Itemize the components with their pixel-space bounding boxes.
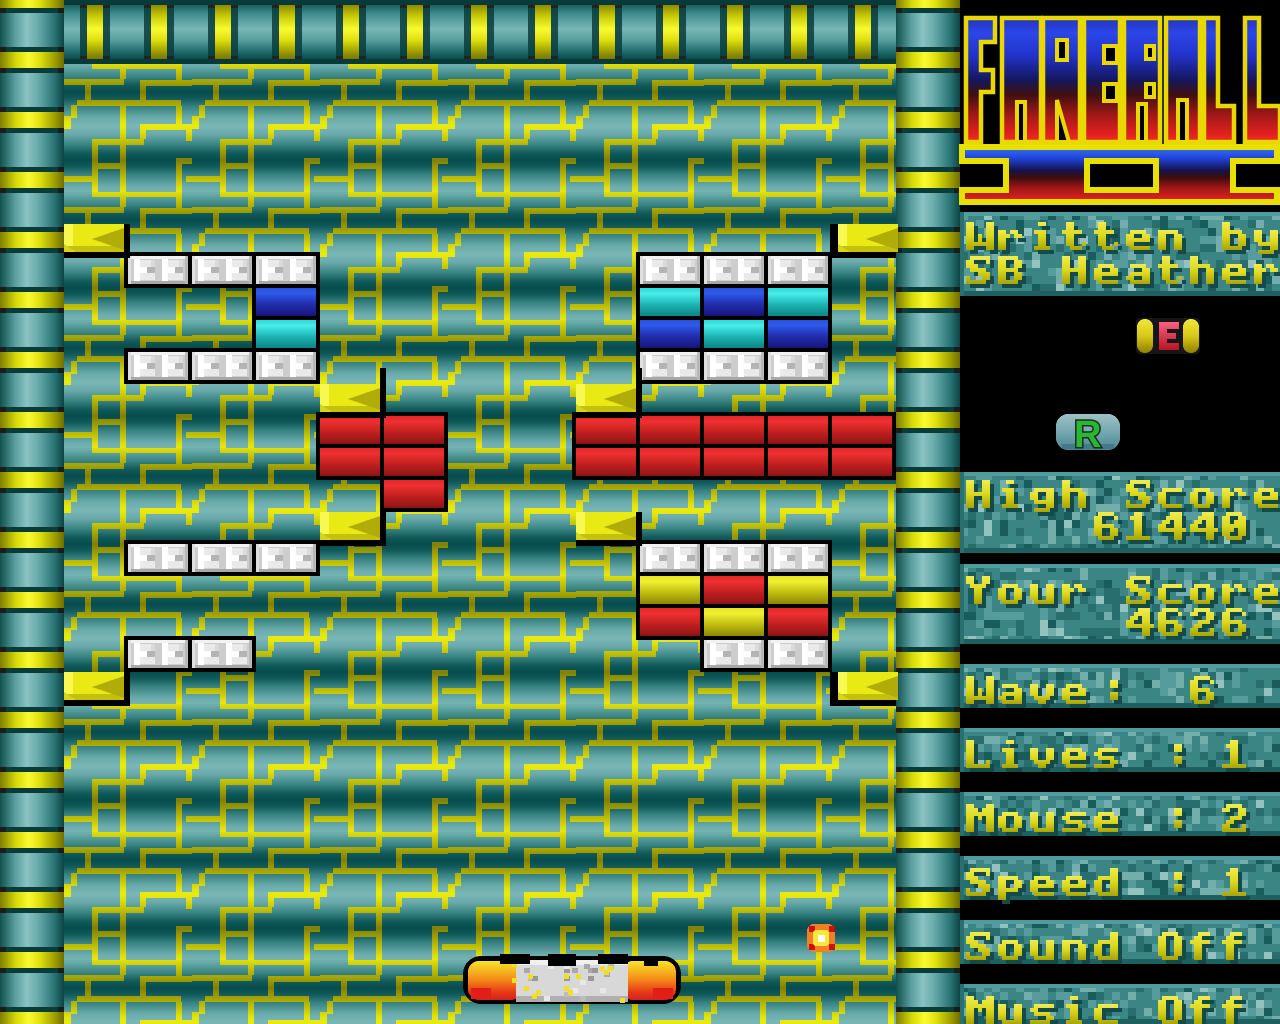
svg-text:R: R bbox=[1074, 414, 1101, 456]
